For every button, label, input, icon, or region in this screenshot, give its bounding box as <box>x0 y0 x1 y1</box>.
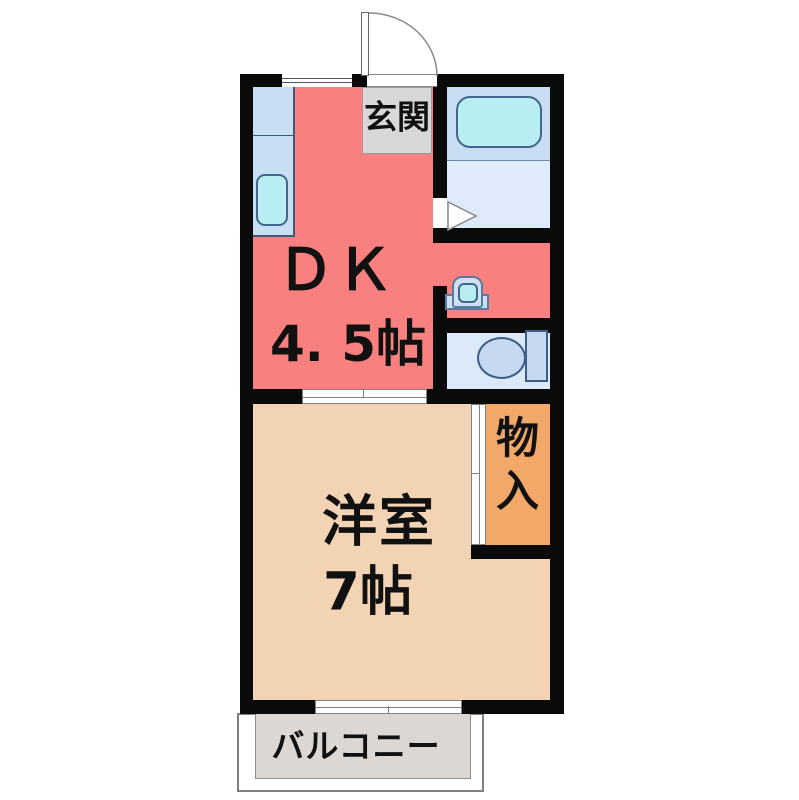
kitchen-sink-icon <box>256 174 288 226</box>
door-swing-icon <box>444 196 484 236</box>
sliding-door-closet <box>471 404 486 545</box>
dk-size-label: 4. 5帖 <box>270 319 426 369</box>
wall-closet-bottom <box>471 545 564 559</box>
floor-plan: 玄関 ＤＫ 4. 5帖 洋室 7帖 物入 バルコニー <box>0 0 799 800</box>
toilet-icon <box>477 337 526 379</box>
kitchen-counter-divider <box>253 135 295 136</box>
window-line <box>282 82 352 83</box>
balcony-label: バルコニー <box>271 730 440 763</box>
window-icon <box>282 74 352 87</box>
window-line <box>282 78 352 79</box>
toilet-tank <box>525 330 548 382</box>
closet-label: 物入 <box>492 415 535 521</box>
wall-divider-upper <box>433 74 447 198</box>
western-room-size-label: 7帖 <box>323 566 413 619</box>
western-room-label: 洋室 <box>322 495 436 550</box>
sliding-door-dk-western <box>302 389 427 404</box>
genkan-label: 玄関 <box>364 101 430 134</box>
wash-basin-bowl <box>458 283 478 303</box>
dk-label: ＤＫ <box>277 243 395 300</box>
sliding-door-balcony <box>315 700 462 714</box>
entrance-door-arc-icon <box>350 0 450 90</box>
bathtub-icon <box>456 96 542 148</box>
